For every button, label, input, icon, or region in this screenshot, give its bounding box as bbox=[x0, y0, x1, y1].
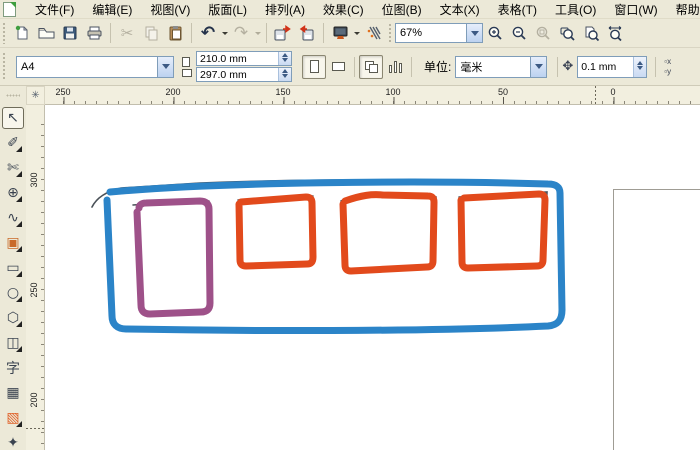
menu-tools[interactable]: 工具(O) bbox=[546, 0, 605, 19]
new-document-button[interactable] bbox=[10, 21, 34, 45]
undo-button[interactable]: ↶ bbox=[196, 21, 220, 45]
smart-fill-tool[interactable]: ▣ bbox=[2, 232, 24, 254]
toolbar-separator bbox=[388, 23, 392, 43]
redo-button[interactable]: ↷ bbox=[229, 21, 253, 45]
units-value: 毫米 bbox=[456, 59, 530, 75]
ruler-label: 200 bbox=[165, 87, 180, 97]
property-bar-grip[interactable] bbox=[2, 52, 7, 82]
document-drawing bbox=[45, 105, 700, 450]
paper-height-spinner[interactable] bbox=[278, 68, 291, 81]
save-floppy-icon bbox=[62, 25, 78, 41]
crop-tool[interactable]: ✄ bbox=[2, 157, 24, 179]
zoom-to-selection-icon bbox=[535, 25, 552, 42]
paper-type-dropdown[interactable] bbox=[157, 57, 173, 77]
property-separator bbox=[655, 57, 656, 77]
paste-clipboard-icon bbox=[168, 25, 183, 41]
ruler-label: 200 bbox=[29, 392, 39, 407]
ruler-label: 250 bbox=[29, 282, 39, 297]
paper-width-field[interactable]: 210.0 mm bbox=[196, 51, 292, 66]
ruler-label: 250 bbox=[55, 87, 70, 97]
print-button[interactable] bbox=[82, 21, 106, 45]
new-document-icon bbox=[14, 25, 30, 41]
ruler-label: 300 bbox=[29, 172, 39, 187]
units-combo[interactable]: 毫米 bbox=[455, 56, 547, 78]
ellipse-tool[interactable]: ○ bbox=[2, 282, 24, 304]
property-bar: A4 210.0 mm 297.0 mm bbox=[0, 48, 700, 86]
undo-icon: ↶ bbox=[201, 25, 215, 42]
box-4-shape[interactable] bbox=[461, 194, 545, 268]
open-folder-icon bbox=[38, 25, 55, 41]
property-separator bbox=[557, 57, 558, 77]
nudge-field[interactable]: 0.1 mm bbox=[577, 56, 647, 78]
portrait-icon bbox=[310, 60, 319, 73]
paper-size-fields: 210.0 mm 297.0 mm bbox=[196, 51, 292, 82]
menu-edit[interactable]: 编辑(E) bbox=[83, 0, 141, 19]
toolbar-separator bbox=[110, 23, 111, 43]
zoom-in-icon bbox=[487, 25, 504, 42]
zoom-to-all-objects-button[interactable] bbox=[555, 21, 579, 45]
ruler-cursor-marker-y bbox=[26, 428, 45, 429]
zoom-to-page-icon bbox=[583, 25, 600, 42]
zoom-to-width-button[interactable] bbox=[603, 21, 627, 45]
menu-window[interactable]: 窗口(W) bbox=[605, 0, 666, 19]
redo-dropdown[interactable] bbox=[253, 21, 262, 45]
app-icon bbox=[3, 2, 16, 17]
paper-width-icon bbox=[182, 57, 190, 67]
freehand-tool[interactable]: ∿ bbox=[2, 207, 24, 229]
shape-tool[interactable]: ✐ bbox=[2, 132, 24, 154]
copy-button[interactable] bbox=[139, 21, 163, 45]
zoom-combo-dropdown[interactable] bbox=[466, 24, 482, 42]
all-pages-button[interactable] bbox=[359, 55, 383, 79]
paper-height-value: 297.0 mm bbox=[197, 69, 278, 81]
ruler-origin-button[interactable]: ✳ bbox=[26, 86, 45, 105]
zoom-tool[interactable]: ⊕ bbox=[2, 182, 24, 204]
units-label: 单位: bbox=[424, 58, 451, 75]
menu-table[interactable]: 表格(T) bbox=[489, 0, 546, 19]
coreldraw-window: 文件(F)编辑(E)视图(V)版面(L)排列(A)效果(C)位图(B)文本(X)… bbox=[0, 0, 700, 450]
portrait-button[interactable] bbox=[302, 55, 326, 79]
menu-bar: 文件(F)编辑(E)视图(V)版面(L)排列(A)效果(C)位图(B)文本(X)… bbox=[0, 0, 700, 19]
landscape-icon bbox=[332, 62, 345, 71]
pick-tool[interactable]: ↖ bbox=[2, 107, 24, 129]
property-separator bbox=[411, 57, 412, 77]
menu-file[interactable]: 文件(F) bbox=[26, 0, 83, 19]
table-tool[interactable]: ▦ bbox=[2, 382, 24, 404]
menu-text[interactable]: 文本(X) bbox=[431, 0, 489, 19]
box-1-shape[interactable] bbox=[137, 201, 210, 314]
welcome-screen-icon bbox=[365, 25, 381, 41]
cut-button[interactable]: ✂ bbox=[115, 21, 139, 45]
print-icon bbox=[86, 25, 103, 41]
nudge-value: 0.1 mm bbox=[578, 61, 633, 73]
duplicate-distance-icons: ▫x ▫y bbox=[664, 58, 671, 76]
paper-width-spinner[interactable] bbox=[278, 52, 291, 65]
paper-height-field[interactable]: 297.0 mm bbox=[196, 67, 292, 82]
ruler-label: 100 bbox=[385, 87, 400, 97]
paper-height-icon bbox=[182, 69, 192, 77]
current-page-button[interactable] bbox=[383, 55, 407, 79]
zoom-to-width-icon bbox=[607, 25, 624, 42]
zoom-to-page-button[interactable] bbox=[579, 21, 603, 45]
page-border bbox=[614, 190, 700, 450]
application-launcher-button[interactable] bbox=[328, 21, 352, 45]
duplicate-y-icon: ▫y bbox=[664, 68, 671, 76]
menu-view[interactable]: 视图(V) bbox=[141, 0, 199, 19]
vertical-ruler[interactable]: 300 250 200 bbox=[26, 105, 45, 450]
text-tool[interactable]: 字 bbox=[2, 357, 24, 379]
zoom-out-icon bbox=[511, 25, 528, 42]
application-launcher-icon bbox=[332, 25, 349, 41]
horizontal-ruler[interactable]: 250 200 150 100 50 0 bbox=[45, 86, 700, 105]
ruler-label: 0 bbox=[610, 87, 615, 97]
welcome-screen-button[interactable] bbox=[361, 21, 385, 45]
paste-button[interactable] bbox=[163, 21, 187, 45]
menu-help[interactable]: 帮助(H) bbox=[667, 0, 700, 19]
menu-layout[interactable]: 版面(L) bbox=[199, 0, 256, 19]
paper-type-value: A4 bbox=[17, 61, 157, 73]
export-button[interactable] bbox=[295, 21, 319, 45]
application-launcher-dropdown[interactable] bbox=[352, 21, 361, 45]
menu-arrange[interactable]: 排列(A) bbox=[256, 0, 314, 19]
undo-dropdown[interactable] bbox=[220, 21, 229, 45]
zoom-out-button[interactable] bbox=[507, 21, 531, 45]
paper-size-icons bbox=[182, 57, 192, 77]
open-button[interactable] bbox=[34, 21, 58, 45]
rectangle-tool[interactable]: ▭ bbox=[2, 257, 24, 279]
ruler-label: 50 bbox=[498, 87, 508, 97]
menu-bitmaps[interactable]: 位图(B) bbox=[373, 0, 431, 19]
ruler-label: 150 bbox=[275, 87, 290, 97]
polygon-tool[interactable]: ⬡ bbox=[2, 307, 24, 329]
nudge-offset-icon: ✥ bbox=[562, 59, 573, 74]
zoom-level-combo[interactable]: 67% bbox=[395, 23, 483, 43]
toolbox-grip[interactable] bbox=[0, 86, 26, 105]
interactive-blend-tool[interactable]: ▧ bbox=[2, 407, 24, 429]
units-dropdown[interactable] bbox=[530, 57, 546, 77]
toolbar-separator bbox=[266, 23, 267, 43]
toolbar-separator bbox=[323, 23, 324, 43]
toolbox: ↖✐✄⊕∿▣▭○⬡◫字▦▧✦ bbox=[0, 105, 26, 450]
save-button[interactable] bbox=[58, 21, 82, 45]
eyedropper-tool[interactable]: ✦ bbox=[2, 432, 24, 450]
toolbar-grip[interactable] bbox=[2, 22, 7, 44]
zoom-to-all-objects-icon bbox=[559, 25, 576, 42]
duplicate-x-icon: ▫x bbox=[664, 58, 671, 66]
ruler-cursor-marker-x bbox=[595, 86, 596, 105]
zoom-in-button[interactable] bbox=[483, 21, 507, 45]
zoom-to-selection-button[interactable] bbox=[531, 21, 555, 45]
all-pages-icon bbox=[365, 61, 378, 73]
zoom-level-value: 67% bbox=[396, 27, 466, 39]
box-2-shape[interactable] bbox=[239, 197, 313, 266]
import-icon bbox=[274, 25, 292, 41]
standard-toolbar: ✂ ↶ ↷ bbox=[0, 19, 700, 48]
toolbar-separator bbox=[191, 23, 192, 43]
ruler-origin-icon: ✳ bbox=[31, 90, 39, 101]
paper-width-value: 210.0 mm bbox=[197, 53, 278, 65]
box-3-shape[interactable] bbox=[343, 195, 434, 271]
cut-icon: ✂ bbox=[121, 26, 134, 41]
current-page-icon bbox=[389, 61, 402, 73]
menu-effects[interactable]: 效果(C) bbox=[314, 0, 373, 19]
property-separator bbox=[354, 57, 355, 77]
nudge-spinner[interactable] bbox=[633, 57, 646, 77]
paper-type-combo[interactable]: A4 bbox=[16, 56, 174, 78]
export-icon bbox=[298, 25, 316, 41]
redo-icon: ↷ bbox=[234, 25, 248, 42]
landscape-button[interactable] bbox=[326, 55, 350, 79]
import-button[interactable] bbox=[271, 21, 295, 45]
basic-shapes-tool[interactable]: ◫ bbox=[2, 332, 24, 354]
copy-icon bbox=[144, 25, 159, 41]
